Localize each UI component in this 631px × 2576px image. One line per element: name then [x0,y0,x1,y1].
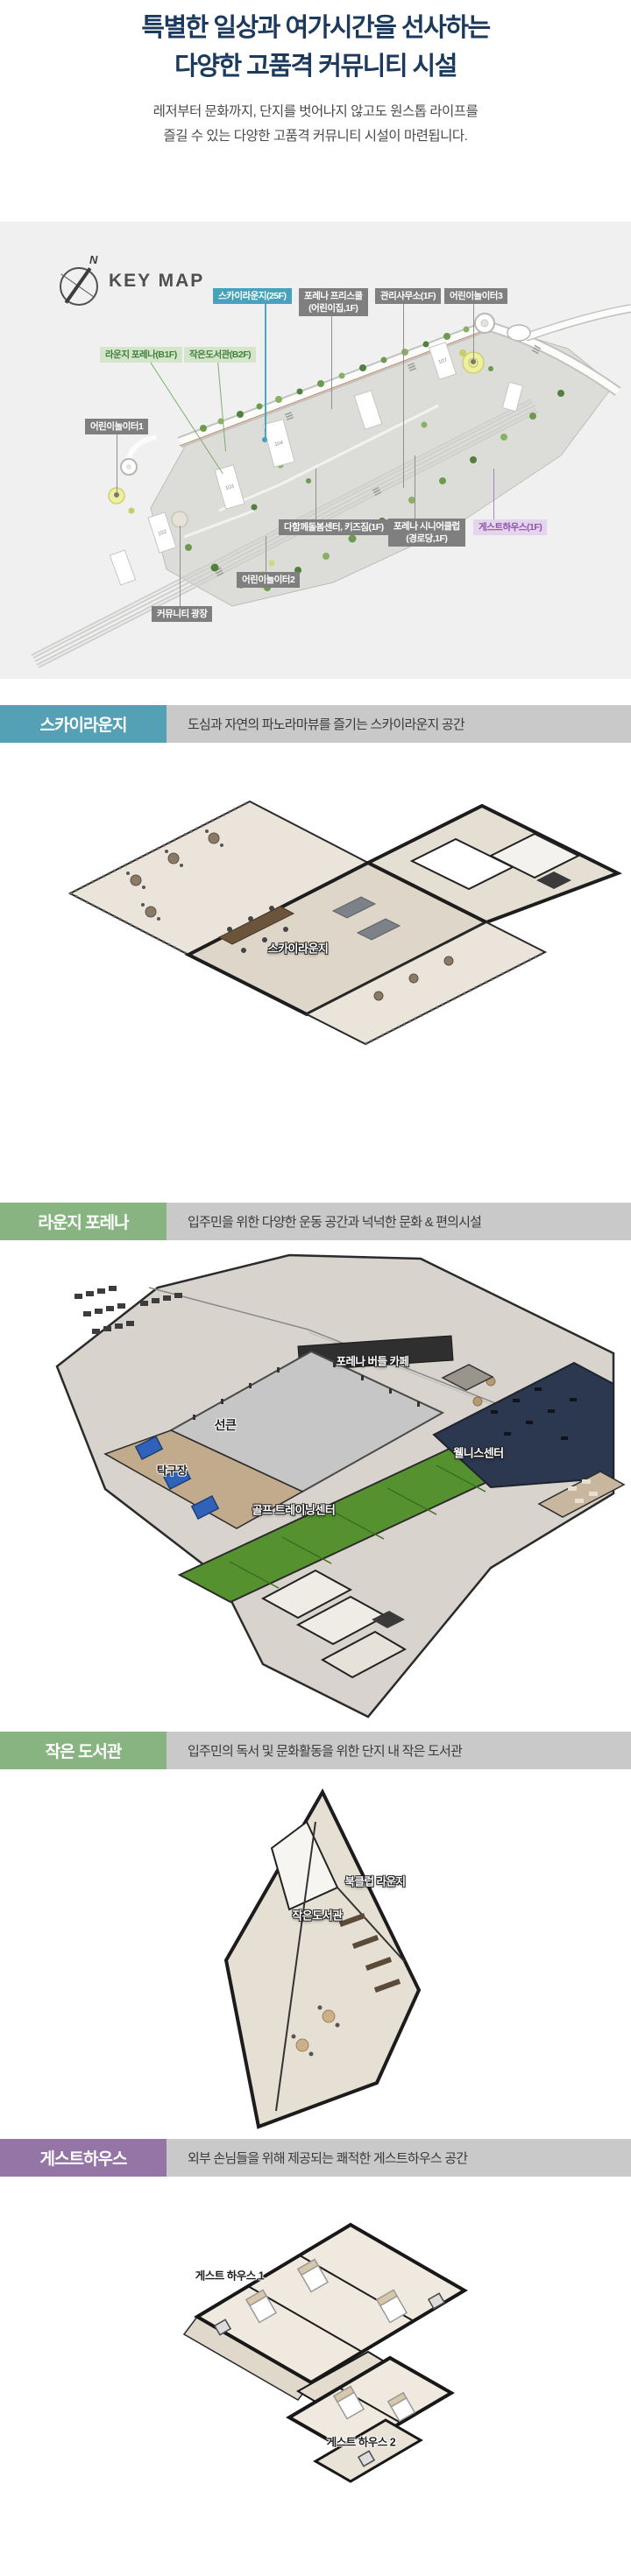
page-subtitle: 레저부터 문화까지, 단지를 벗어나지 않고도 원스톱 라이프를 즐길 수 있는… [0,100,631,149]
forena-floorplan: 포레나 버들 카페 선큰 탁구장 골프 트레이닝센터 웰니스센터 [0,1248,631,1739]
map-label-guesthouse: 게스트하우스(1F) [473,519,547,535]
page-title-line1: 특별한 일상과 여가시간을 선사하는 [0,9,631,47]
section-tag-skylounge: 스카이라운지 [0,705,167,743]
page-subtitle-line1: 레저부터 문화까지, 단지를 벗어나지 않고도 원스톱 라이프를 [0,100,631,124]
section-desc-library: 입주민의 독서 및 문화활동을 위한 단지 내 작은 도서관 [167,1732,631,1769]
library-floorplan: 북클럽 라운지 작은도서관 [0,1787,631,2137]
leader-care-center [315,469,316,519]
page-title-line2: 다양한 고품격 커뮤니티 시설 [0,47,631,86]
leader-playground1 [117,431,117,494]
skylounge-floorplan: 스카이라운지 [0,758,631,1196]
page-subtitle-line2: 즐길 수 있는 다양한 고품격 커뮤니티 시설이 마련됩니다. [0,124,631,149]
plan-label-small-library: 작은도서관 [292,1907,342,1923]
plan-label-bookclub-lounge: 북클럽 라운지 [345,1873,406,1889]
leader-guesthouse [493,469,494,519]
section-desc-skylounge: 도심과 자연의 파노라마뷰를 즐기는 스카이라운지 공간 [167,705,631,743]
map-label-care-center: 다함께돌봄센터, 키즈짐(1F) [279,519,389,535]
leader-playground2 [266,536,266,572]
leader-preschool [331,315,332,409]
map-label-playground2: 어린이놀이터2 [237,572,300,588]
page-title: 특별한 일상과 여가시간을 선사하는 다양한 고품격 커뮤니티 시설 [0,9,631,86]
leader-dot-skylounge [262,437,267,442]
keymap-heading: KEY MAP [109,271,204,292]
map-label-skylounge: 스카이라운지(25F) [213,288,292,304]
compass-icon: N [58,262,100,304]
section-header-forena: 라운지 포레나 입주민을 위한 다양한 운동 공간과 넉넉한 문화 & 편의시설 [0,1203,631,1240]
section-header-skylounge: 스카이라운지 도심과 자연의 파노라마뷰를 즐기는 스카이라운지 공간 [0,705,631,743]
map-label-playground1: 어린이놀이터1 [85,419,148,434]
plan-label-guesthouse-1: 게스트 하우스 1 [195,2267,264,2283]
guesthouse-floorplan: 게스트 하우스 1 게스트 하우스 2 [0,2194,631,2576]
skylounge-floorplan-illustration [0,758,631,1196]
section-desc-forena: 입주민을 위한 다양한 운동 공간과 넉넉한 문화 & 편의시설 [167,1203,631,1240]
map-label-office: 관리사무소(1F) [375,288,441,304]
plan-label-golf-center: 골프 트레이닝센터 [252,1501,336,1518]
plan-label-wellness-center: 웰니스센터 [453,1444,503,1461]
section-tag-library: 작은 도서관 [0,1732,167,1769]
section-header-guesthouse: 게스트하우스 외부 손님들을 위해 제공되는 쾌적한 게스트하우스 공간 [0,2139,631,2177]
keymap-panel: 107 104 103 102 N KEY MAP [0,222,631,679]
leader-senior-club [415,455,415,519]
plan-label-table-tennis: 탁구장 [157,1462,187,1479]
section-header-library: 작은 도서관 입주민의 독서 및 문화활동을 위한 단지 내 작은 도서관 [0,1732,631,1769]
leader-dot-playground1 [114,492,119,498]
leader-playground3 [473,302,474,361]
section-tag-forena: 라운지 포레나 [0,1203,167,1240]
section-desc-guesthouse: 외부 손님들을 위해 제공되는 쾌적한 게스트하우스 공간 [167,2139,631,2177]
plan-label-guesthouse-2: 게스트 하우스 2 [327,2433,395,2450]
forena-floorplan-illustration [0,1248,631,1739]
plan-label-cafe: 포레나 버들 카페 [337,1352,409,1369]
plan-label-sunken: 선큰 [215,1416,237,1434]
leader-office [403,302,404,488]
plan-label-skylounge: 스카이라운지 [268,940,329,956]
leader-plaza [180,526,181,606]
map-label-playground3: 어린이놀이터3 [444,288,507,304]
leader-dot-playground3 [471,359,476,364]
map-label-senior-club: 포레나 시니어클럽(경로당,1F) [388,519,465,547]
map-label-preschool: 포레나 프리스쿨(어린이집,1F) [299,288,368,316]
community-facilities-page: 특별한 일상과 여가시간을 선사하는 다양한 고품격 커뮤니티 시설 레저부터 … [0,0,631,2576]
section-tag-guesthouse: 게스트하우스 [0,2139,167,2177]
guesthouse-floorplan-illustration [0,2194,631,2576]
map-label-plaza: 커뮤니티 광장 [152,606,212,622]
compass-north-label: N [89,253,97,266]
leader-skylounge [265,302,266,440]
library-floorplan-illustration [0,1787,631,2137]
map-label-library: 작은도서관(B2F) [184,347,256,363]
map-label-lounge-forena: 라운지 포레나(B1F) [100,347,182,363]
